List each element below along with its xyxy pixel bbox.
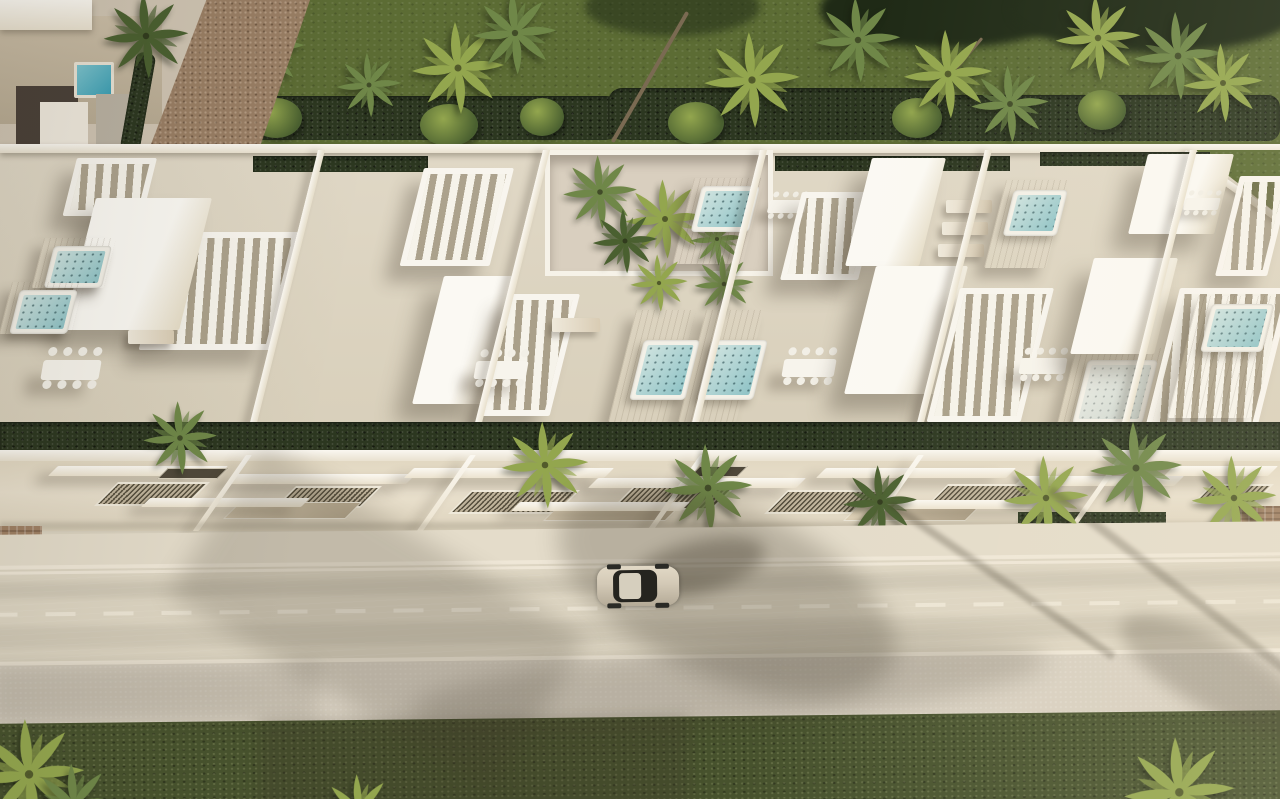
palm-tree-icon	[100, 0, 192, 82]
outdoor-dining-set	[473, 361, 528, 379]
sun-lounger	[552, 318, 600, 332]
palm-tree-icon	[470, 0, 560, 78]
car-wheel	[607, 603, 621, 608]
pool-water	[15, 295, 71, 329]
palm-tree-icon	[1086, 418, 1186, 518]
pool-water	[635, 345, 693, 395]
palm-tree-icon	[812, 0, 904, 86]
outdoor-dining-set	[1018, 358, 1067, 374]
villa-roof-slab	[0, 0, 92, 30]
car-roof-panel	[619, 573, 641, 599]
aerial-render-scene	[0, 0, 1280, 799]
pool-water	[1009, 195, 1062, 231]
plunge-pool	[9, 290, 78, 334]
garden-shrub	[520, 98, 564, 136]
pool-water	[1206, 309, 1267, 347]
roof-hedge-strip	[253, 156, 428, 172]
palm-tree-icon	[140, 398, 220, 478]
pool-water	[50, 251, 106, 283]
garden-shrub	[1078, 90, 1126, 130]
plunge-pool	[1200, 304, 1274, 352]
outdoor-dining-set	[1183, 198, 1221, 210]
car-wheel	[607, 564, 621, 569]
palm-tree-icon	[29, 759, 120, 799]
palm-tree-icon	[700, 28, 804, 132]
palm-tree-icon	[1119, 732, 1240, 799]
car	[597, 566, 679, 607]
palm-tree-icon	[628, 252, 690, 314]
sun-lounger	[128, 330, 174, 344]
palm-tree-icon	[498, 418, 592, 512]
street-band	[0, 521, 1280, 799]
palm-tree-icon	[334, 50, 404, 120]
outdoor-dining-set	[40, 360, 102, 380]
palm-tree-icon	[319, 771, 400, 799]
palm-tree-icon	[968, 62, 1052, 146]
outdoor-dining-set	[781, 359, 836, 377]
car-wheel	[655, 603, 669, 608]
palm-tree-icon	[1180, 40, 1266, 126]
car-wheel	[655, 564, 669, 569]
plunge-pool	[1003, 190, 1068, 236]
